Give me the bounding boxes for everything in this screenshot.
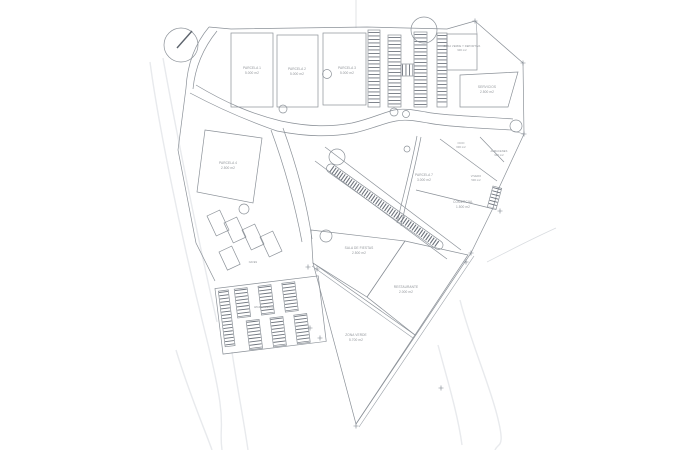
site-boundary <box>178 21 524 281</box>
label-parcela-2-area: 5.000 m2 <box>290 72 304 76</box>
label-parcela-2: PARCELA 2 <box>288 67 306 71</box>
label-zona-verde-sur-area: 5.700 m2 <box>349 338 363 342</box>
benchmark-icon <box>439 386 444 391</box>
site-plan-drawing: PARCELA 1 5.000 m2 PARCELA 2 5.000 m2 PA… <box>0 0 696 450</box>
tree-circle-icon <box>390 108 398 116</box>
label-sala-fiestas: SALA DE FIESTAS <box>345 246 374 250</box>
tree-circle-icon <box>239 204 249 214</box>
lot-strip-b1-hatch <box>253 321 256 348</box>
southwest-parking <box>215 276 326 354</box>
faint-road-southeast <box>460 300 501 450</box>
label-parcela-3: PARCELA 3 <box>338 66 356 70</box>
lot-strip-b3-hatch <box>300 315 303 342</box>
tree-circle-icon <box>279 105 287 113</box>
label-parcela-7-area: 3.000 m2 <box>417 178 431 182</box>
internal-road-second-edge <box>312 266 413 338</box>
benchmark-icon <box>354 424 359 429</box>
label-sala-fiestas-area: 2.500 m2 <box>352 251 366 255</box>
north-parking <box>368 30 447 107</box>
roundabout <box>164 28 198 62</box>
label-aparcamiento: APARCAMIENTO <box>254 306 274 309</box>
boundary-west-inner-arc <box>193 31 217 89</box>
benchmark-icon <box>498 209 503 214</box>
road-se-inner-edge <box>359 256 474 427</box>
rotunda-circle-icon <box>411 17 437 43</box>
label-almacenes: ALMACENES <box>491 149 508 153</box>
label-naves: NAVES <box>249 261 258 264</box>
parcel-sala-fiestas-outline <box>311 230 405 297</box>
road-ns-narrow-west-edge <box>397 136 417 223</box>
label-vivero: VIVERO <box>471 174 481 178</box>
label-zona-verde-area: 900 m2 <box>457 48 467 52</box>
label-ocio: OCIO <box>457 141 464 145</box>
road-ns-west-edge <box>271 130 302 242</box>
south-triangle <box>311 230 468 424</box>
faint-road-west-2 <box>163 58 217 322</box>
street-diagonal-nw-edge <box>325 147 461 250</box>
parking-crossbar <box>401 64 414 76</box>
east-mini-parking <box>487 186 501 210</box>
label-servicios: SERVICIOS <box>478 85 496 89</box>
label-parcela-7: PARCELA 7 <box>415 173 433 177</box>
label-parcela-1-area: 5.000 m2 <box>245 71 259 75</box>
trees <box>239 17 522 242</box>
benchmark-icon <box>522 132 527 137</box>
tree-circle-icon <box>404 146 410 152</box>
label-ocio-area: 600 m2 <box>456 145 466 149</box>
label-parcela-4-area: 2.500 m2 <box>221 166 235 170</box>
roads <box>190 85 524 427</box>
building-5 <box>219 246 240 270</box>
parcel-2-outline <box>277 35 318 107</box>
lot-strip-t3-hatch <box>288 284 291 311</box>
benchmark-icon <box>469 251 474 256</box>
benchmark-icon <box>318 336 323 341</box>
lot-strip-b2-hatch <box>277 318 280 345</box>
lot-strip-left-hatch <box>223 292 230 346</box>
lot-strip-t1-hatch <box>241 289 244 316</box>
tree-circle-icon <box>329 149 345 165</box>
cul-de-sac-circle-icon <box>510 120 522 132</box>
label-restaurante-area: 2.000 m2 <box>399 290 413 294</box>
site-plan-canvas: PARCELA 1 5.000 m2 PARCELA 2 5.000 m2 PA… <box>0 0 696 450</box>
label-servicios-area: 2.500 m2 <box>480 90 494 94</box>
tree-circle-icon <box>323 70 332 79</box>
faint-road-southeast-2 <box>438 345 462 445</box>
parking-strip-2 <box>388 35 401 107</box>
road-ew-upper-edge <box>281 109 513 126</box>
label-comercial-area: 1.500 m2 <box>456 205 470 209</box>
boundary-north <box>209 21 475 29</box>
road-ew-lower-edge <box>277 120 512 136</box>
label-restaurante: RESTAURANTE <box>394 285 419 289</box>
label-parcela-4: PARCELA 4 <box>219 161 237 165</box>
label-comercial: COMERCIAL <box>453 200 473 204</box>
building-4 <box>260 231 282 257</box>
building-1 <box>207 210 229 236</box>
faint-road-southwest <box>232 352 248 450</box>
label-parcela-1: PARCELA 1 <box>243 66 261 70</box>
faint-road-west <box>150 62 222 450</box>
benchmark-icon <box>306 265 311 270</box>
label-zona-verde-sur: ZONA VERDE <box>345 333 367 337</box>
green-zone-outline <box>447 34 477 70</box>
east-mini-parking-hatch <box>492 188 497 207</box>
road-nw-upper-edge <box>196 85 281 121</box>
label-parcela-3-area: 5.000 m2 <box>340 71 354 75</box>
faint-road-southwest-2 <box>176 350 212 450</box>
road-nw-lower-edge <box>190 93 277 131</box>
parcel-1-outline <box>231 33 273 107</box>
label-almacenes-area: 900 m2 <box>494 153 504 157</box>
roundabout-needle-icon <box>177 31 192 48</box>
road-ns-east-edge <box>283 128 312 239</box>
faint-road-northeast-ext <box>487 228 556 262</box>
tree-circle-icon <box>403 111 410 118</box>
label-vivero-area: 500 m2 <box>471 178 481 182</box>
lot-strip-t2-hatch <box>265 286 268 313</box>
west-parcels <box>197 130 282 270</box>
roundabout-circle <box>164 28 198 62</box>
label-zona-verde: ZONA VERDE Y DEPORTIVA <box>444 44 481 48</box>
